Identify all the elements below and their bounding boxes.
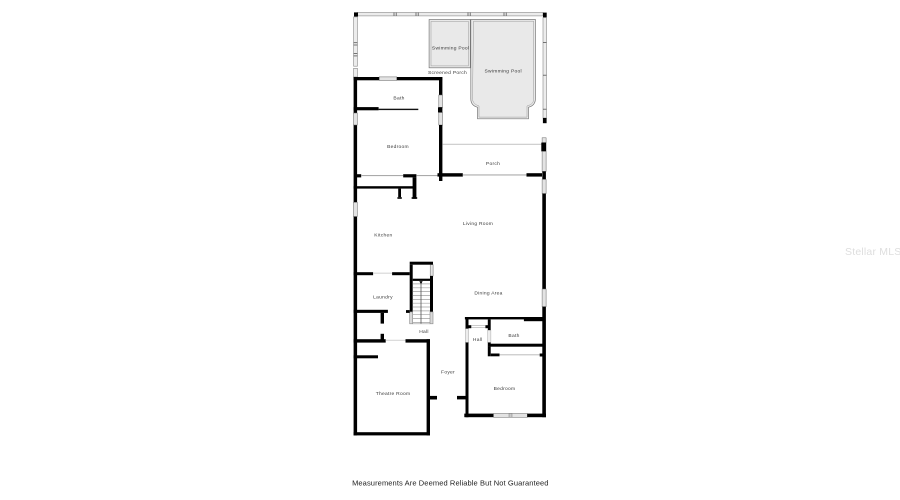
svg-text:Foyer: Foyer: [441, 369, 455, 375]
svg-text:Hall: Hall: [473, 337, 483, 343]
svg-text:Theatre Room: Theatre Room: [376, 391, 411, 397]
svg-text:Bath: Bath: [508, 333, 519, 339]
svg-text:Bath: Bath: [393, 96, 404, 102]
svg-text:Living Room: Living Room: [463, 221, 493, 227]
svg-text:Swimming Pool: Swimming Pool: [432, 46, 469, 52]
svg-text:Bedroom: Bedroom: [494, 386, 516, 392]
svg-text:Swimming Pool: Swimming Pool: [485, 69, 522, 75]
svg-text:Laundry: Laundry: [373, 294, 393, 300]
svg-text:Hall: Hall: [419, 329, 429, 335]
svg-text:Measurements Are Deemed Reliab: Measurements Are Deemed Reliable But Not…: [352, 479, 548, 488]
svg-text:Bedroom: Bedroom: [387, 144, 409, 150]
svg-text:Stellar MLS: Stellar MLS: [845, 246, 900, 258]
svg-text:Dining Area: Dining Area: [474, 291, 502, 297]
svg-text:Screened Porch: Screened Porch: [428, 70, 467, 76]
svg-text:Kitchen: Kitchen: [374, 233, 392, 239]
svg-text:Porch: Porch: [486, 161, 500, 167]
